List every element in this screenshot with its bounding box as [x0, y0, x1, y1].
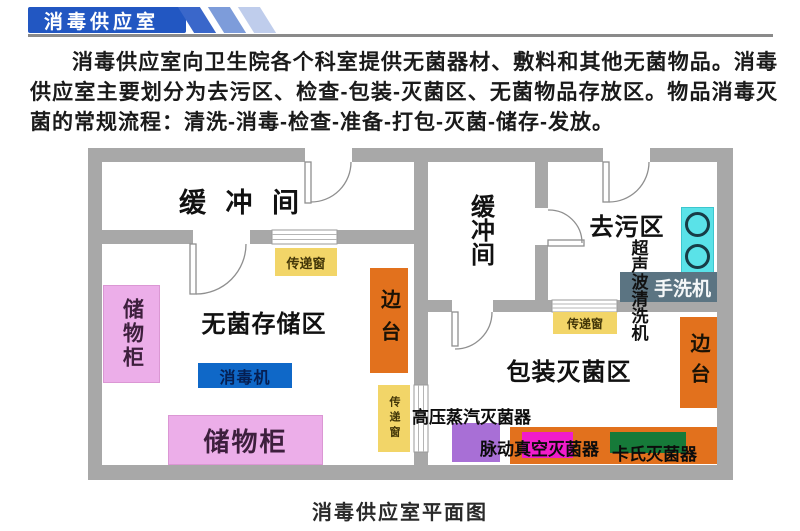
wall-middle-vertical-2 — [414, 452, 428, 465]
door-arc-decon-side — [548, 210, 582, 243]
plan-caption: 消毒供应室平面图 — [0, 496, 800, 525]
page-title: 消毒供应室 — [44, 7, 159, 34]
cassette-sterilizer-label: 卡氏灭菌器 — [612, 440, 697, 465]
wall-left-horizontal-2 — [250, 230, 272, 244]
steam-sterilizer-label: 高压蒸汽灭菌器 — [412, 403, 531, 428]
header-underline — [28, 34, 773, 37]
door-arc-storage — [196, 244, 246, 294]
door-leaf-decon-top — [603, 162, 609, 202]
sink-unit — [681, 207, 714, 273]
wall-decon-vertical-2 — [535, 245, 548, 312]
door-arc-buffer-left — [311, 162, 351, 202]
wall-left-horizontal-1 — [102, 230, 193, 244]
disinfector-box: 消毒机 — [198, 363, 292, 388]
header-banner: 消毒供应室 — [28, 7, 186, 33]
wall-middle-vertical-1 — [414, 162, 428, 385]
floor-plan: 缓 冲 间 缓冲间 无菌存储区 去污区 包装灭菌区 储物柜 储物柜 消毒机 边台… — [88, 148, 733, 480]
wall-top-1 — [88, 148, 305, 162]
door-leaf-packing — [452, 312, 458, 346]
wall-bottom — [88, 465, 733, 480]
pass-window-top: 传递窗 — [275, 248, 337, 276]
side-table-left: 边台 — [370, 268, 408, 373]
sink-basin-icon — [685, 212, 710, 237]
window-right — [552, 300, 617, 312]
door-leaf-storage — [190, 244, 196, 294]
sink-basin-icon — [685, 244, 710, 269]
pass-window-right: 传递窗 — [553, 312, 617, 334]
wall-decon-vertical-1 — [535, 162, 548, 208]
wall-right — [717, 148, 733, 480]
pass-window-mid: 传递窗 — [378, 385, 410, 452]
wall-left-horizontal-3 — [337, 230, 414, 244]
door-leaf-decon-side — [548, 240, 584, 246]
wall-right-horizontal-1 — [428, 300, 452, 312]
room-label-buffer-left: 缓 冲 间 — [172, 184, 312, 216]
door-arc-decon-top — [609, 162, 649, 202]
wall-top-2 — [352, 148, 603, 162]
cabinet-bottom: 储物柜 — [168, 415, 323, 465]
room-label-decontamination: 去污区 — [586, 209, 668, 239]
room-label-buffer-right: 缓冲间 — [462, 188, 498, 272]
window-left — [272, 230, 337, 244]
side-table-right: 边台 — [680, 317, 717, 408]
room-label-packing-sterilization: 包装灭菌区 — [503, 354, 635, 384]
ultrasonic-cleaner-label: 超声波清洗机 — [626, 236, 650, 344]
door-arc-packing — [455, 312, 492, 349]
wall-top-3 — [650, 148, 733, 162]
page: 消毒供应室 消毒供应室向卫生院各个科室提供无菌器材、敷料和其他无菌物品。消毒供应… — [0, 0, 800, 531]
vacuum-sterilizer-label: 脉动真空灭菌器 — [480, 435, 599, 460]
wall-left — [88, 148, 102, 480]
intro-paragraph: 消毒供应室向卫生院各个科室提供无菌器材、敷料和其他无菌物品。消毒供应室主要划分为… — [30, 48, 778, 138]
room-label-sterile-storage: 无菌存储区 — [194, 306, 334, 336]
cabinet-left: 储物柜 — [103, 285, 160, 383]
